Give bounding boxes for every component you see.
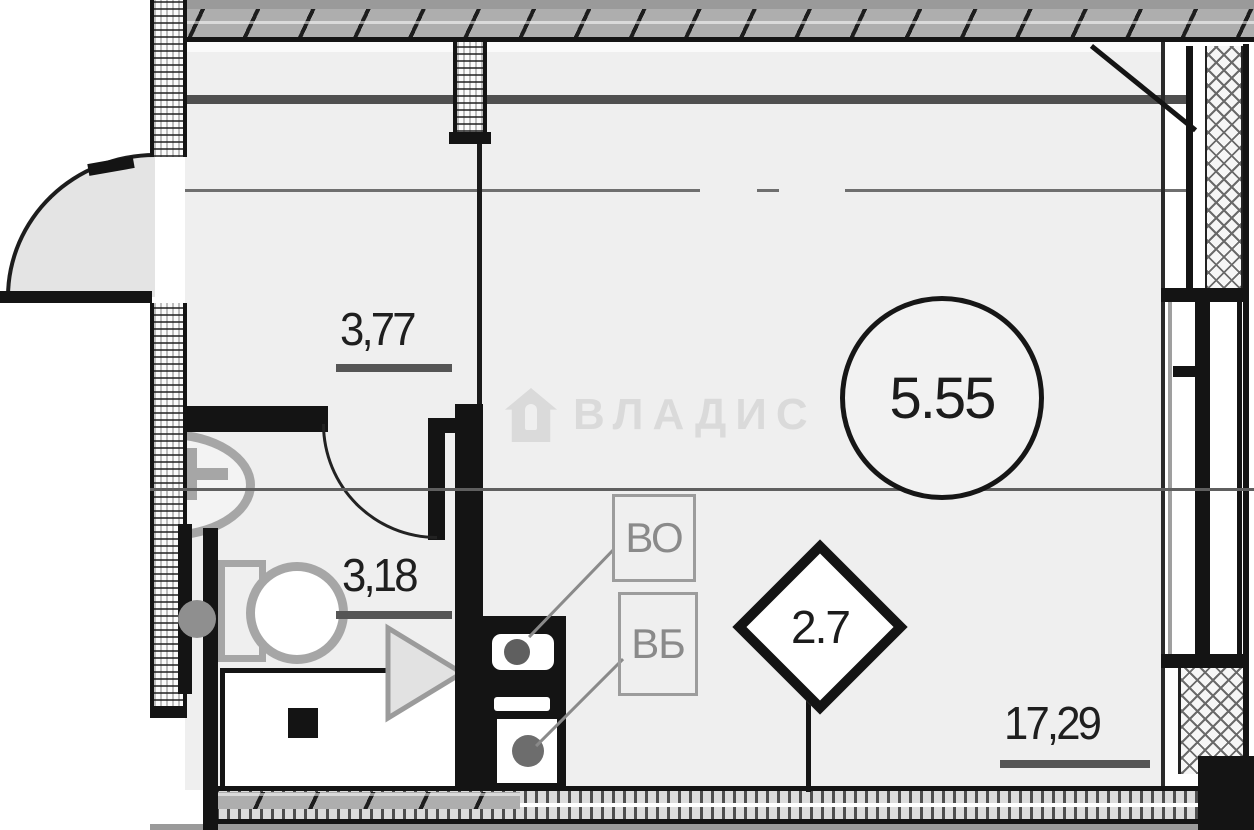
kitchen-sink-drain — [504, 639, 530, 665]
shaft-label-vb: ВБ — [631, 620, 685, 668]
beam-line-dark — [185, 95, 1186, 104]
partition-knob — [178, 600, 216, 638]
wall-stub-cap — [449, 132, 491, 144]
watermark-text: ВЛАДИС — [573, 390, 817, 440]
total-area-value: 5.55 — [890, 365, 995, 432]
bathroom-area-underline — [336, 611, 452, 619]
hallway-area-label: 3,77 — [340, 306, 414, 352]
top-wall — [150, 9, 1254, 42]
left-wall-cap — [150, 706, 187, 718]
total-area-circle: 5.55 — [840, 296, 1044, 500]
shaft-box-vo: ВО — [612, 494, 696, 582]
beam-line-thin-b — [845, 189, 1186, 192]
right-outer-edge — [1243, 44, 1249, 790]
beam-line-thin-dash — [757, 189, 779, 192]
bottom-wall-left-texture — [210, 792, 520, 809]
ceiling-height-value: 2.7 — [791, 600, 849, 654]
shaft-label-vo: ВО — [625, 514, 682, 562]
left-wall-upper — [150, 0, 187, 157]
toilet-bowl — [246, 562, 348, 664]
sink-faucet-stub — [186, 448, 197, 500]
beam-line-thin — [185, 189, 700, 192]
house-icon — [505, 388, 557, 442]
bathroom-top-wall — [185, 406, 328, 432]
top-wall-outer-strip — [150, 0, 1254, 9]
wall-stub-top — [453, 42, 487, 132]
kitchen-wall — [455, 404, 483, 790]
ceiling-height-diamond: 2.7 — [758, 565, 882, 689]
bottom-wall-outer-strip — [150, 824, 1254, 830]
window-sill-top — [1161, 288, 1248, 302]
hallway-area-underline — [336, 364, 452, 372]
window-handle — [1173, 366, 1195, 377]
window-mullion — [1195, 302, 1210, 654]
entrance-threshold — [0, 291, 152, 303]
window-outer-frame — [1237, 302, 1242, 654]
section-line — [150, 488, 1254, 491]
shaft-box-vb: ВБ — [618, 592, 698, 696]
entrance-door-arc — [6, 153, 155, 297]
hall-divider-line — [477, 144, 482, 408]
shower-drain — [288, 708, 318, 738]
window-sill-bottom — [1161, 654, 1248, 668]
right-bottom-corner — [1198, 756, 1254, 830]
floor-top-light-strip — [185, 42, 1161, 52]
watermark: ВЛАДИС — [505, 388, 817, 442]
diamond-leader-line — [806, 697, 811, 792]
bathroom-area-label: 3,18 — [342, 552, 416, 598]
floor-plan: ВЛАДИС ВО ВБ — [0, 0, 1254, 830]
right-pier-line — [1186, 46, 1193, 288]
kitchen-slot — [494, 697, 550, 711]
window-inner-frame — [1168, 302, 1172, 654]
bathroom-west-partition-b — [203, 528, 218, 830]
right-pier-insulation — [1205, 46, 1243, 288]
living-room-area-label: 17,29 — [1004, 700, 1099, 746]
living-room-area-underline — [1000, 760, 1150, 768]
